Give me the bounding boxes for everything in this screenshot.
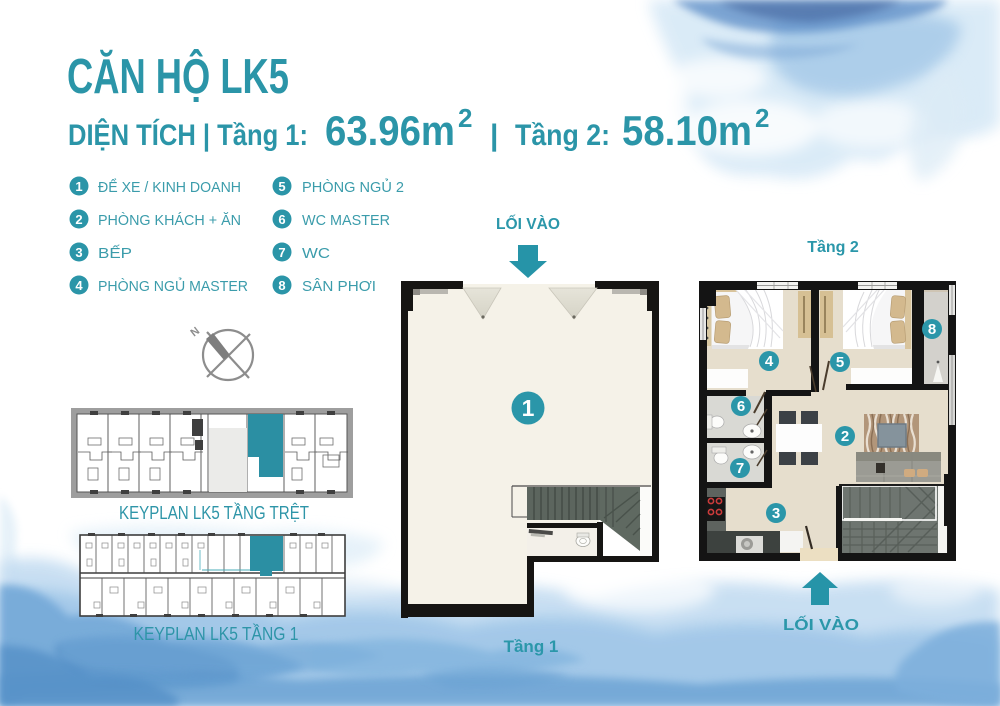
svg-text:8: 8 [278,278,285,293]
svg-text:PHÒNG NGỦ MASTER: PHÒNG NGỦ MASTER [98,277,248,295]
svg-text:4: 4 [765,353,774,370]
svg-text:KEYPLAN LK5 TẦNG TRỆT: KEYPLAN LK5 TẦNG TRỆT [119,502,309,523]
svg-text:6: 6 [278,212,285,227]
svg-text:KEYPLAN LK5 TẦNG 1: KEYPLAN LK5 TẦNG 1 [134,623,299,644]
svg-text:58.10m: 58.10m [622,107,752,154]
svg-text:Tầng 2:: Tầng 2: [515,119,610,152]
svg-text:7: 7 [736,460,744,477]
svg-text:3: 3 [772,505,780,522]
svg-text:Tầng 2: Tầng 2 [807,239,859,256]
svg-text:63.96m: 63.96m [325,107,455,154]
svg-text:2: 2 [75,212,82,227]
svg-text:7: 7 [278,245,285,260]
svg-text:CĂN HỘ LK5: CĂN HỘ LK5 [67,49,289,104]
svg-text:6: 6 [737,398,745,415]
svg-text:WC: WC [302,245,330,262]
svg-text:|: | [490,119,498,152]
svg-text:LỐI VÀO: LỐI VÀO [783,614,859,634]
svg-text:8: 8 [928,321,936,338]
svg-text:PHÒNG KHÁCH + ĂN: PHÒNG KHÁCH + ĂN [98,212,241,229]
svg-text:LỐI VÀO: LỐI VÀO [496,213,560,233]
svg-text:1: 1 [75,179,82,194]
svg-text:ĐỂ XE / KINH DOANH: ĐỂ XE / KINH DOANH [98,178,241,196]
svg-text:5: 5 [278,179,285,194]
svg-text:4: 4 [75,278,83,293]
svg-text:WC MASTER: WC MASTER [302,212,390,229]
svg-text:1: 1 [522,395,535,421]
svg-text:Tầng 1: Tầng 1 [504,637,559,656]
svg-text:PHÒNG NGỦ 2: PHÒNG NGỦ 2 [302,178,404,196]
svg-text:5: 5 [836,354,844,371]
svg-text:DIỆN TÍCH | Tầng 1:: DIỆN TÍCH | Tầng 1: [68,118,308,152]
svg-text:3: 3 [75,245,82,260]
svg-text:SÂN PHƠI: SÂN PHƠI [302,278,376,295]
svg-text:BẾP: BẾP [98,245,132,262]
svg-text:N: N [188,325,202,339]
svg-text:2: 2 [458,103,472,133]
svg-text:2: 2 [755,103,769,133]
svg-text:2: 2 [841,428,849,445]
